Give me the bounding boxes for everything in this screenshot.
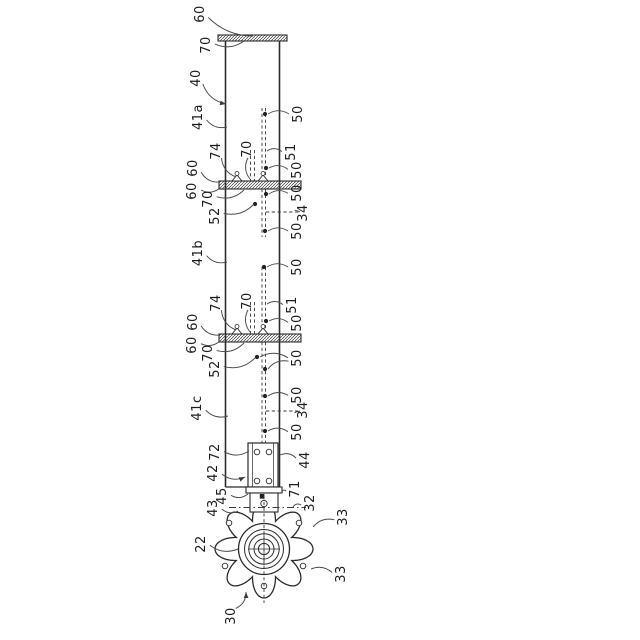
bolt-hole: [266, 449, 272, 455]
ref-label-group-60: 60: [193, 5, 253, 36]
leader-arrowhead: [239, 477, 245, 482]
ref-label-group-41c: 41c: [190, 395, 228, 420]
cable-anchor-dot: [263, 394, 267, 398]
cable-anchor-dot: [263, 367, 267, 371]
ref-label-group-30: 30: [224, 592, 248, 625]
leader-line: [246, 158, 250, 179]
figure-canvas: 60704041a74706060705241b74706060705241c7…: [0, 0, 640, 640]
leader-line: [267, 302, 283, 305]
ref-label-70: 70: [201, 190, 216, 208]
cable-anchor-dot: [264, 319, 268, 323]
leader-line: [207, 120, 228, 128]
cable-anchor-dot: [263, 112, 267, 116]
leader-line: [222, 158, 237, 177]
ref-label-group-41a: 41a: [191, 104, 227, 130]
ref-label-52: 52: [208, 360, 223, 378]
ref-label-50: 50: [290, 314, 305, 332]
ref-label-60: 60: [185, 336, 200, 354]
ref-label-74: 74: [209, 142, 224, 160]
ref-label-group-70: 70: [240, 140, 255, 179]
ref-label-50: 50: [290, 386, 305, 404]
ref-label-70: 70: [199, 36, 214, 54]
ref-label-33: 33: [334, 565, 349, 583]
ref-label-33: 33: [336, 508, 351, 526]
sprocket-bolt-hole: [226, 520, 232, 526]
leader-line: [231, 494, 248, 498]
ref-label-30: 30: [224, 607, 239, 625]
ref-label-71: 71: [288, 480, 303, 498]
sprocket-bolt-hole: [296, 520, 302, 526]
ref-label-43: 43: [206, 499, 221, 517]
ref-label-group-50: 50: [268, 222, 305, 240]
ref-label-group-50: 50: [260, 349, 305, 369]
ref-label-60: 60: [185, 182, 200, 200]
cable-anchor-dot: [263, 229, 267, 233]
ref-label-group-34: 34: [295, 401, 312, 419]
ref-label-34: 34: [296, 204, 311, 222]
ref-label-60: 60: [186, 159, 201, 177]
leader-line: [269, 191, 288, 194]
leader-line: [260, 353, 288, 358]
ref-label-42: 42: [206, 464, 221, 482]
leader-line: [236, 592, 246, 608]
patent-figure: 60704041a74706060705241b74706060705241c7…: [0, 0, 640, 640]
leader-line: [267, 264, 288, 267]
leader-line: [269, 166, 288, 170]
bolt-hole: [254, 449, 260, 455]
ref-label-40: 40: [189, 69, 204, 87]
leader-line: [207, 256, 227, 263]
leader-line: [311, 567, 332, 572]
ref-label-group-74: 74: [209, 294, 236, 330]
ref-label-32: 32: [303, 494, 318, 512]
leader-line: [201, 172, 220, 182]
ref-label-group-52: 52: [208, 358, 255, 378]
ref-label-50: 50: [291, 105, 306, 123]
leader-line: [280, 454, 296, 459]
leader-line: [203, 84, 226, 104]
ref-label-group-50: 50: [268, 105, 306, 123]
ref-label-41b: 41b: [191, 240, 206, 266]
ref-label-52: 52: [208, 207, 223, 225]
ref-label-51: 51: [284, 143, 299, 161]
leader-line: [224, 358, 255, 368]
leader-line: [224, 204, 254, 214]
ref-label-41c: 41c: [190, 395, 205, 420]
ref-label-51: 51: [285, 296, 300, 314]
ref-label-22: 22: [194, 535, 209, 553]
leader-line: [268, 228, 288, 231]
sprocket-bolt-hole: [300, 563, 306, 569]
cable-anchor-dot: [263, 429, 267, 433]
ref-label-72: 72: [208, 443, 223, 461]
leader-line: [269, 319, 288, 323]
ref-label-group-40: 40: [189, 69, 226, 105]
ref-label-44: 44: [298, 451, 313, 469]
reference-labels: 60704041a74706060705241b74706060705241c7…: [185, 5, 351, 625]
leader-line: [268, 392, 288, 396]
ref-label-group-33: 33: [313, 508, 351, 527]
mounting-bracket: [248, 443, 278, 487]
ref-label-group-60: 60: [186, 313, 220, 335]
ref-label-group-50: 50: [269, 314, 305, 332]
ref-label-50: 50: [290, 349, 305, 367]
ref-label-50: 50: [290, 161, 305, 179]
leader-line: [313, 519, 335, 527]
ref-label-group-50: 50: [268, 386, 305, 404]
leader-line: [224, 451, 249, 455]
leader-line: [206, 410, 228, 417]
leader-line: [215, 41, 244, 47]
leader-line: [245, 310, 250, 332]
ref-label-group-70: 70: [201, 190, 244, 208]
ref-label-group-41b: 41b: [191, 240, 227, 266]
cable-anchor-dot: [262, 265, 266, 269]
ref-label-50: 50: [290, 222, 305, 240]
leader-line: [222, 509, 238, 513]
ref-label-60: 60: [193, 5, 208, 23]
leader-line: [221, 310, 236, 330]
ref-label-group-51: 51: [267, 143, 299, 161]
ref-label-60: 60: [186, 313, 201, 331]
leader-line: [268, 428, 288, 432]
ref-label-group-34: 34: [295, 204, 312, 222]
ref-label-group-44: 44: [280, 451, 313, 469]
cable-anchor-dot: [255, 355, 259, 359]
ref-label-group-72: 72: [208, 443, 249, 461]
ref-label-70: 70: [201, 344, 216, 362]
leader-line: [268, 111, 289, 114]
ref-label-group-50: 50: [267, 258, 305, 276]
cable-anchor-dot: [264, 166, 268, 170]
leader-line: [210, 545, 238, 551]
ref-label-group-51: 51: [267, 296, 300, 314]
leader-line: [201, 326, 220, 335]
bolt-hole: [266, 478, 272, 484]
ref-label-group-60: 60: [186, 159, 220, 182]
ref-label-group-70: 70: [201, 343, 244, 362]
leader-line: [293, 504, 301, 507]
ref-label-50: 50: [290, 423, 305, 441]
ref-label-group-50: 50: [269, 161, 305, 179]
ref-label-74: 74: [209, 294, 224, 312]
ref-label-41a: 41a: [191, 104, 206, 130]
ref-label-group-70: 70: [240, 292, 255, 332]
bolt-hole: [254, 478, 260, 484]
ref-label-group-74: 74: [209, 142, 236, 177]
ref-label-group-50: 50: [268, 423, 305, 441]
ref-label-70: 70: [240, 140, 255, 158]
ref-label-34: 34: [296, 401, 311, 419]
leader-arrowhead: [244, 592, 249, 598]
ref-label-group-33: 33: [311, 565, 349, 583]
cable-anchor-dot: [264, 192, 268, 196]
leader-line: [217, 190, 244, 198]
leader-line: [208, 18, 253, 37]
ref-label-70: 70: [240, 292, 255, 310]
leader-line: [282, 490, 286, 492]
sprocket-bolt-hole: [222, 563, 228, 569]
ref-label-group-71: 71: [282, 480, 303, 498]
leader-line: [268, 361, 289, 369]
ref-label-50: 50: [290, 258, 305, 276]
leader-line: [217, 343, 244, 352]
ref-label-50: 50: [290, 184, 305, 202]
